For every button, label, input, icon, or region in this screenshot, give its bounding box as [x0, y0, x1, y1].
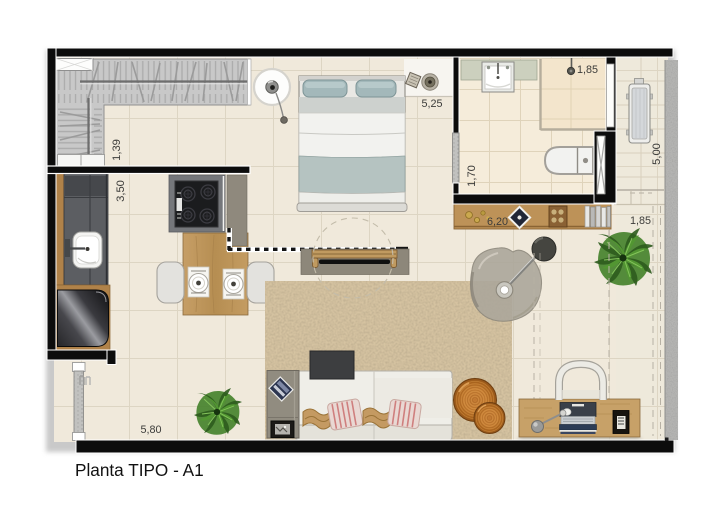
svg-text:1,70: 1,70 [466, 165, 478, 187]
svg-text:1,85: 1,85 [630, 215, 651, 227]
svg-text:3,50: 3,50 [115, 180, 127, 202]
svg-text:5,25: 5,25 [421, 98, 442, 110]
svg-text:5,80: 5,80 [140, 424, 161, 436]
svg-text:1,85: 1,85 [577, 64, 598, 76]
svg-text:6,20: 6,20 [487, 216, 508, 228]
svg-text:1,39: 1,39 [111, 139, 123, 161]
svg-text:5,00: 5,00 [651, 143, 663, 165]
svg-text:Planta TIPO - A1: Planta TIPO - A1 [75, 460, 204, 480]
